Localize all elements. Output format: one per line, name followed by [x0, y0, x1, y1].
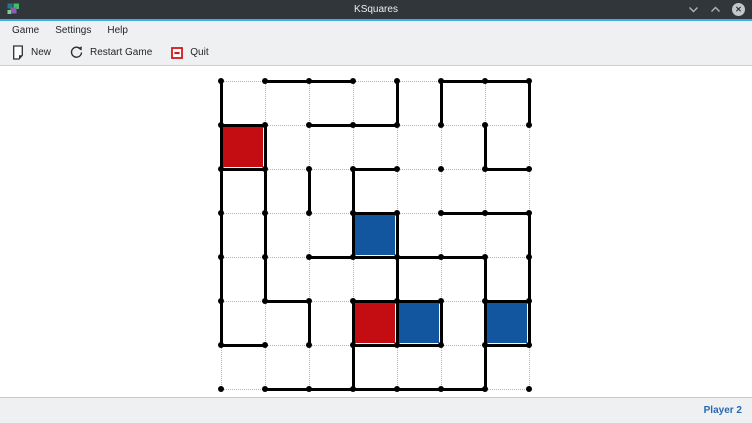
grid-dot: [394, 254, 400, 260]
drawn-line-v-4-1: [264, 256, 267, 302]
drawn-line-v-3-0: [220, 212, 223, 258]
grid-dot: [482, 386, 488, 392]
drawn-line-h-0-1: [264, 80, 310, 83]
drawn-line-v-2-0: [220, 168, 223, 214]
open-line-h-5-2[interactable]: [309, 301, 353, 302]
grid-dot: [350, 298, 356, 304]
open-line-h-3-2[interactable]: [309, 213, 353, 214]
grid-dot: [350, 254, 356, 260]
grid-dot: [218, 78, 224, 84]
open-line-h-1-1[interactable]: [265, 125, 309, 126]
drawn-line-v-5-5: [440, 300, 443, 346]
grid-dot: [482, 210, 488, 216]
open-line-v-2-7[interactable]: [529, 169, 530, 213]
dots-and-boxes-board: [0, 0, 752, 423]
grid-dot: [482, 166, 488, 172]
grid-dot: [350, 78, 356, 84]
grid-dot: [438, 254, 444, 260]
grid-dot: [218, 386, 224, 392]
grid-dot: [306, 342, 312, 348]
drawn-line-v-5-0: [220, 300, 223, 346]
open-line-h-7-6[interactable]: [485, 389, 529, 390]
open-line-h-0-0[interactable]: [221, 81, 265, 82]
grid-dot: [482, 298, 488, 304]
open-line-v-4-2[interactable]: [309, 257, 310, 301]
grid-dot: [350, 342, 356, 348]
grid-dot: [394, 386, 400, 392]
grid-dot: [350, 122, 356, 128]
grid-dot: [526, 166, 532, 172]
open-line-v-4-3[interactable]: [353, 257, 354, 301]
grid-dot: [526, 122, 532, 128]
drawn-line-v-5-7: [528, 300, 531, 346]
open-line-v-5-1[interactable]: [265, 301, 266, 345]
drawn-line-h-0-5: [440, 80, 486, 83]
drawn-line-h-0-2: [308, 80, 354, 83]
drawn-line-v-1-0: [220, 124, 223, 170]
grid-dot: [438, 298, 444, 304]
drawn-line-v-0-4: [396, 80, 399, 126]
open-line-v-6-0[interactable]: [221, 345, 222, 389]
drawn-line-h-5-3: [352, 300, 398, 303]
open-line-v-1-7[interactable]: [529, 125, 530, 169]
open-line-h-2-1[interactable]: [265, 169, 309, 170]
drawn-line-h-6-0: [220, 344, 266, 347]
open-line-h-3-4[interactable]: [397, 213, 441, 214]
grid-dot: [350, 386, 356, 392]
grid-dot: [306, 166, 312, 172]
open-line-h-6-2[interactable]: [309, 345, 353, 346]
grid-dot: [262, 298, 268, 304]
drawn-line-v-4-7: [528, 256, 531, 302]
grid-dot: [262, 210, 268, 216]
open-line-h-0-3[interactable]: [353, 81, 397, 82]
grid-dot: [438, 166, 444, 172]
drawn-line-h-6-4: [396, 344, 442, 347]
claimed-square-blue: [487, 303, 527, 343]
grid-dot: [526, 298, 532, 304]
open-line-v-1-5[interactable]: [441, 125, 442, 169]
open-line-h-6-5[interactable]: [441, 345, 485, 346]
grid-dot: [394, 298, 400, 304]
drawn-line-h-5-6: [484, 300, 530, 303]
drawn-line-h-5-4: [396, 300, 442, 303]
open-line-h-5-5[interactable]: [441, 301, 485, 302]
open-line-v-0-6[interactable]: [485, 81, 486, 125]
drawn-line-h-1-2: [308, 124, 354, 127]
drawn-line-v-4-0: [220, 256, 223, 302]
drawn-line-h-2-0: [220, 168, 266, 171]
open-line-v-0-2[interactable]: [309, 81, 310, 125]
open-line-h-1-6[interactable]: [485, 125, 529, 126]
grid-dot: [262, 386, 268, 392]
drawn-line-h-4-2: [308, 256, 354, 259]
grid-dot: [218, 342, 224, 348]
drawn-line-v-6-6: [484, 344, 487, 390]
open-line-h-3-0[interactable]: [221, 213, 265, 214]
drawn-line-h-7-2: [308, 388, 354, 391]
drawn-line-v-3-4: [396, 212, 399, 258]
drawn-line-h-4-3: [352, 256, 398, 259]
drawn-line-h-5-1: [264, 300, 310, 303]
grid-dot: [218, 122, 224, 128]
grid-dot: [526, 342, 532, 348]
grid-dot: [394, 342, 400, 348]
statusbar: Player 2: [0, 397, 752, 423]
drawn-line-h-0-6: [484, 80, 530, 83]
current-player-label: Player 2: [704, 405, 742, 416]
open-line-v-6-7[interactable]: [529, 345, 530, 389]
grid-dot: [262, 166, 268, 172]
window-controls: ✕: [688, 3, 745, 16]
open-line-v-2-5[interactable]: [441, 169, 442, 213]
drawn-line-h-2-3: [352, 168, 398, 171]
maximize-icon[interactable]: [710, 6, 721, 13]
drawn-line-v-0-7: [528, 80, 531, 126]
open-line-h-4-1[interactable]: [265, 257, 309, 258]
grid-dot: [306, 210, 312, 216]
open-line-v-6-1[interactable]: [265, 345, 266, 389]
open-line-v-1-2[interactable]: [309, 125, 310, 169]
open-line-v-1-4[interactable]: [397, 125, 398, 169]
open-line-h-7-0[interactable]: [221, 389, 265, 390]
claimed-square-blue: [399, 303, 439, 343]
drawn-line-h-7-5: [440, 388, 486, 391]
open-line-h-2-2[interactable]: [309, 169, 353, 170]
open-line-v-4-5[interactable]: [441, 257, 442, 301]
grid-dot: [438, 210, 444, 216]
drawn-line-v-2-3: [352, 168, 355, 214]
open-line-v-6-5[interactable]: [441, 345, 442, 389]
grid-dot: [438, 342, 444, 348]
grid-dot: [218, 298, 224, 304]
open-line-v-0-3[interactable]: [353, 81, 354, 125]
drawn-line-h-2-6: [484, 168, 530, 171]
drawn-line-h-3-6: [484, 212, 530, 215]
open-line-h-1-4[interactable]: [397, 125, 441, 126]
drawn-line-h-6-3: [352, 344, 398, 347]
grid-dot: [394, 122, 400, 128]
grid-dot: [526, 210, 532, 216]
drawn-line-v-5-2: [308, 300, 311, 346]
minimize-icon[interactable]: [688, 6, 699, 13]
drawn-line-v-2-1: [264, 168, 267, 214]
grid-dot: [218, 210, 224, 216]
grid-dot: [394, 78, 400, 84]
drawn-line-v-3-1: [264, 212, 267, 258]
grid-dot: [438, 78, 444, 84]
grid-dot: [306, 122, 312, 128]
open-line-h-1-5[interactable]: [441, 125, 485, 126]
open-line-v-3-5[interactable]: [441, 213, 442, 257]
drawn-line-v-4-6: [484, 256, 487, 302]
grid-dot: [526, 254, 532, 260]
drawn-line-v-0-5: [440, 80, 443, 126]
open-line-v-6-2[interactable]: [309, 345, 310, 389]
grid-dot: [394, 166, 400, 172]
grid-dot: [306, 298, 312, 304]
grid-dot: [262, 122, 268, 128]
open-line-h-0-4[interactable]: [397, 81, 441, 82]
drawn-line-v-1-1: [264, 124, 267, 170]
grid-dot: [262, 254, 268, 260]
open-line-h-2-5[interactable]: [441, 169, 485, 170]
drawn-line-v-4-4: [396, 256, 399, 302]
open-line-v-2-6[interactable]: [485, 169, 486, 213]
drawn-line-v-5-4: [396, 300, 399, 346]
grid-dot: [262, 78, 268, 84]
drawn-line-v-3-7: [528, 212, 531, 258]
close-icon[interactable]: ✕: [732, 3, 745, 16]
drawn-line-v-5-6: [484, 300, 487, 346]
grid-dot: [438, 122, 444, 128]
open-line-v-3-6[interactable]: [485, 213, 486, 257]
grid-dot: [482, 78, 488, 84]
open-line-v-0-1[interactable]: [265, 81, 266, 125]
grid-dot: [306, 78, 312, 84]
open-line-h-4-6[interactable]: [485, 257, 529, 258]
grid-dot: [350, 166, 356, 172]
drawn-line-h-3-3: [352, 212, 398, 215]
grid-dot: [218, 166, 224, 172]
grid-dot: [526, 386, 532, 392]
grid-dot: [262, 342, 268, 348]
grid-dot: [306, 254, 312, 260]
drawn-line-v-1-6: [484, 124, 487, 170]
grid-dot: [526, 78, 532, 84]
drawn-line-h-4-4: [396, 256, 442, 259]
open-line-h-6-1[interactable]: [265, 345, 309, 346]
grid-dot: [482, 122, 488, 128]
grid-dot: [482, 254, 488, 260]
drawn-line-h-1-0: [220, 124, 266, 127]
drawn-line-h-7-3: [352, 388, 398, 391]
open-line-h-3-1[interactable]: [265, 213, 309, 214]
open-line-h-4-0[interactable]: [221, 257, 265, 258]
drawn-line-v-2-2: [308, 168, 311, 214]
drawn-line-h-3-5: [440, 212, 486, 215]
drawn-line-h-7-4: [396, 388, 442, 391]
open-line-v-6-4[interactable]: [397, 345, 398, 389]
claimed-square-red: [355, 303, 395, 343]
drawn-line-h-7-1: [264, 388, 310, 391]
ksquares-window: KSquares ✕ Game Settings Help New: [0, 0, 752, 423]
drawn-line-h-1-3: [352, 124, 398, 127]
claimed-square-blue: [355, 215, 395, 255]
drawn-line-v-6-3: [352, 344, 355, 390]
grid-dot: [438, 386, 444, 392]
grid-dot: [482, 342, 488, 348]
drawn-line-h-4-5: [440, 256, 486, 259]
claimed-square-red: [223, 127, 263, 167]
grid-dot: [218, 254, 224, 260]
open-line-v-2-4[interactable]: [397, 169, 398, 213]
grid-dot: [394, 210, 400, 216]
open-line-h-2-4[interactable]: [397, 169, 441, 170]
drawn-line-v-0-0: [220, 80, 223, 126]
open-line-h-5-0[interactable]: [221, 301, 265, 302]
drawn-line-v-5-3: [352, 300, 355, 346]
open-line-v-1-3[interactable]: [353, 125, 354, 169]
grid-dot: [306, 386, 312, 392]
open-line-v-3-2[interactable]: [309, 213, 310, 257]
grid-dot: [350, 210, 356, 216]
drawn-line-h-6-6: [484, 344, 530, 347]
drawn-line-v-3-3: [352, 212, 355, 258]
